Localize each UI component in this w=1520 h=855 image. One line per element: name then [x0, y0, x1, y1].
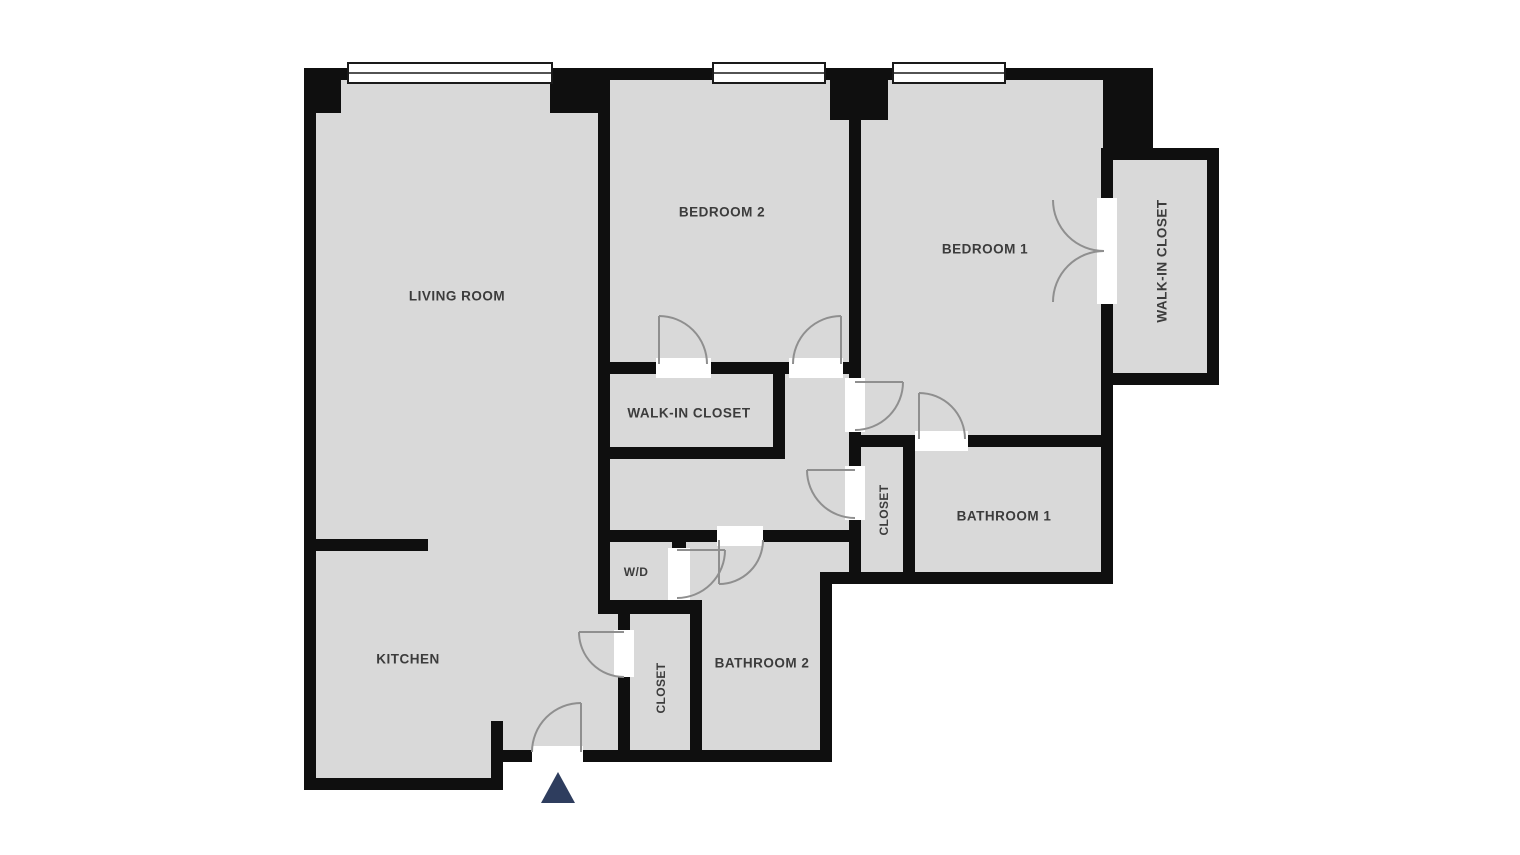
- room-label-bathroom-1: BATHROOM 1: [957, 509, 1052, 524]
- floor-fill: [310, 74, 1213, 784]
- room-label-kitchen: KITCHEN: [376, 652, 440, 667]
- room-label-closet-hall: CLOSET: [877, 484, 891, 535]
- window: [893, 63, 1005, 83]
- floor-plan-page: LIVING ROOM KITCHEN BEDROOM 2 BEDROOM 1 …: [0, 0, 1520, 855]
- column-block: [304, 68, 341, 113]
- room-label-bedroom-1: BEDROOM 1: [942, 242, 1028, 257]
- window: [713, 63, 825, 83]
- room-label-closet-entry: CLOSET: [654, 662, 668, 713]
- room-label-living-room: LIVING ROOM: [409, 289, 505, 304]
- column-block: [1103, 68, 1153, 160]
- entrance-marker-icon: [541, 772, 575, 803]
- column-block: [550, 68, 602, 113]
- window: [348, 63, 552, 83]
- floor-plan-drawing: [0, 0, 1520, 855]
- room-label-bedroom-2: BEDROOM 2: [679, 205, 765, 220]
- room-label-walk-in-closet-bedroom2: WALK-IN CLOSET: [627, 406, 750, 421]
- room-label-walk-in-closet-bedroom1: WALK-IN CLOSET: [1155, 199, 1170, 322]
- room-label-washer-dryer: W/D: [624, 565, 649, 579]
- room-label-bathroom-2: BATHROOM 2: [715, 656, 810, 671]
